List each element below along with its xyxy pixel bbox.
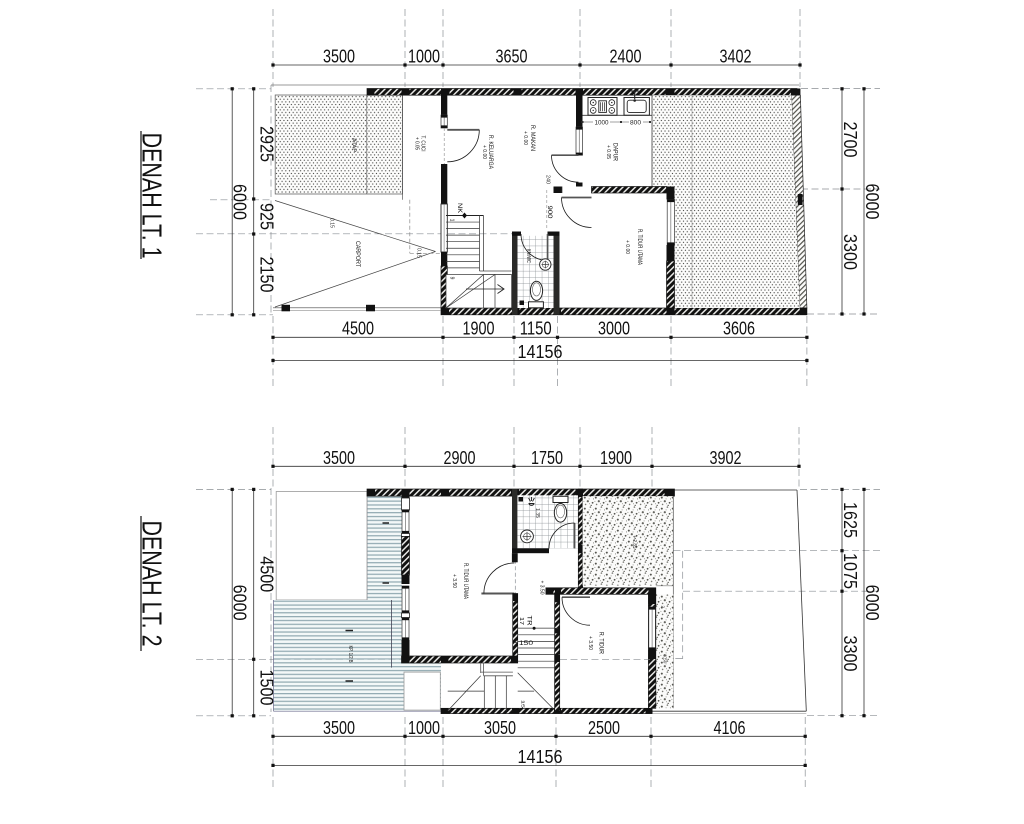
svg-text:+ 0.00: + 0.00 [624,240,630,254]
svg-text:6000: 6000 [230,585,250,621]
svg-text:1075: 1075 [840,553,860,589]
svg-text:1.35: 1.35 [534,508,540,518]
svg-text:1150: 1150 [520,319,552,339]
svg-text:3650: 3650 [496,47,528,67]
svg-text:2150: 2150 [257,257,277,293]
svg-text:2900: 2900 [444,448,476,468]
svg-text:900: 900 [546,206,553,219]
svg-text:2500: 2500 [588,718,620,738]
svg-text:4106: 4106 [714,718,746,738]
svg-text:6000: 6000 [862,585,882,621]
svg-text:14156: 14156 [518,342,563,362]
svg-text:1: 1 [449,219,455,222]
svg-text:R. TIDUR: R. TIDUR [598,632,605,654]
svg-text:ATAP: ATAP [351,138,357,152]
svg-text:2700: 2700 [840,122,860,158]
svg-text:3050: 3050 [484,718,516,738]
svg-text:1000: 1000 [408,718,440,738]
svg-text:6000: 6000 [230,184,250,220]
svg-text:R. TIDUR UTAMA: R. TIDUR UTAMA [462,563,469,599]
svg-text:0.15: 0.15 [416,248,422,258]
svg-text:R. KELUARGA: R. KELUARGA [487,135,494,170]
svg-text:3000: 3000 [598,319,630,339]
svg-text:17: 17 [518,617,524,625]
svg-text:925: 925 [257,203,277,230]
svg-text:+ 0.00: + 0.00 [481,145,487,159]
svg-text:+ 0.05: + 0.05 [605,145,611,159]
svg-text:+ 2.85: + 2.85 [631,536,637,549]
svg-text:3500: 3500 [323,448,355,468]
svg-text:DAPUR: DAPUR [612,143,619,161]
svg-text:1000: 1000 [595,119,609,126]
svg-text:4500: 4500 [257,556,277,592]
svg-text:6000: 6000 [862,184,882,220]
svg-text:1000: 1000 [408,47,440,67]
svg-text:3300: 3300 [840,636,860,672]
svg-text:1900: 1900 [600,448,632,468]
svg-text:KP. 1/2 B: KP. 1/2 B [347,646,353,664]
svg-text:1900: 1900 [463,319,495,339]
svg-text:240: 240 [545,175,551,184]
svg-text:9: 9 [449,277,455,280]
svg-text:+ 3.50: + 3.50 [451,574,457,588]
svg-text:14156: 14156 [518,747,563,767]
svg-text:3902: 3902 [710,448,742,468]
svg-text:+ 3.50: + 3.50 [587,636,593,650]
svg-text:3300: 3300 [840,234,860,270]
svg-text:0.15: 0.15 [329,218,335,228]
svg-text:NK: NK [456,203,463,214]
svg-text:800: 800 [630,119,641,126]
svg-text:R. MAKAN: R. MAKAN [529,125,536,151]
svg-text:3500: 3500 [323,47,355,67]
svg-text:+ 3.50: + 3.50 [539,581,545,595]
svg-text:1625: 1625 [840,502,860,538]
svg-text:KM/WC: KM/WC [525,249,531,263]
svg-text:2925: 2925 [257,126,277,162]
svg-text:3500: 3500 [323,718,355,738]
svg-text:1750: 1750 [531,448,563,468]
svg-text:3.50: 3.50 [663,654,668,664]
svg-text:+ 0.00: + 0.00 [522,131,528,145]
svg-text:15: 15 [521,700,526,709]
svg-text:150: 150 [519,640,533,647]
svg-text:2400: 2400 [610,47,642,67]
svg-text:CARPORT: CARPORT [354,241,361,267]
svg-text:3606: 3606 [723,319,755,339]
svg-text:+ 0.05: + 0.05 [414,137,420,150]
svg-text:TR: TR [526,616,533,626]
svg-text:R. TIDUR UTAMA: R. TIDUR UTAMA [636,229,643,265]
svg-text:4500: 4500 [342,319,374,339]
svg-text:3402: 3402 [720,47,752,67]
